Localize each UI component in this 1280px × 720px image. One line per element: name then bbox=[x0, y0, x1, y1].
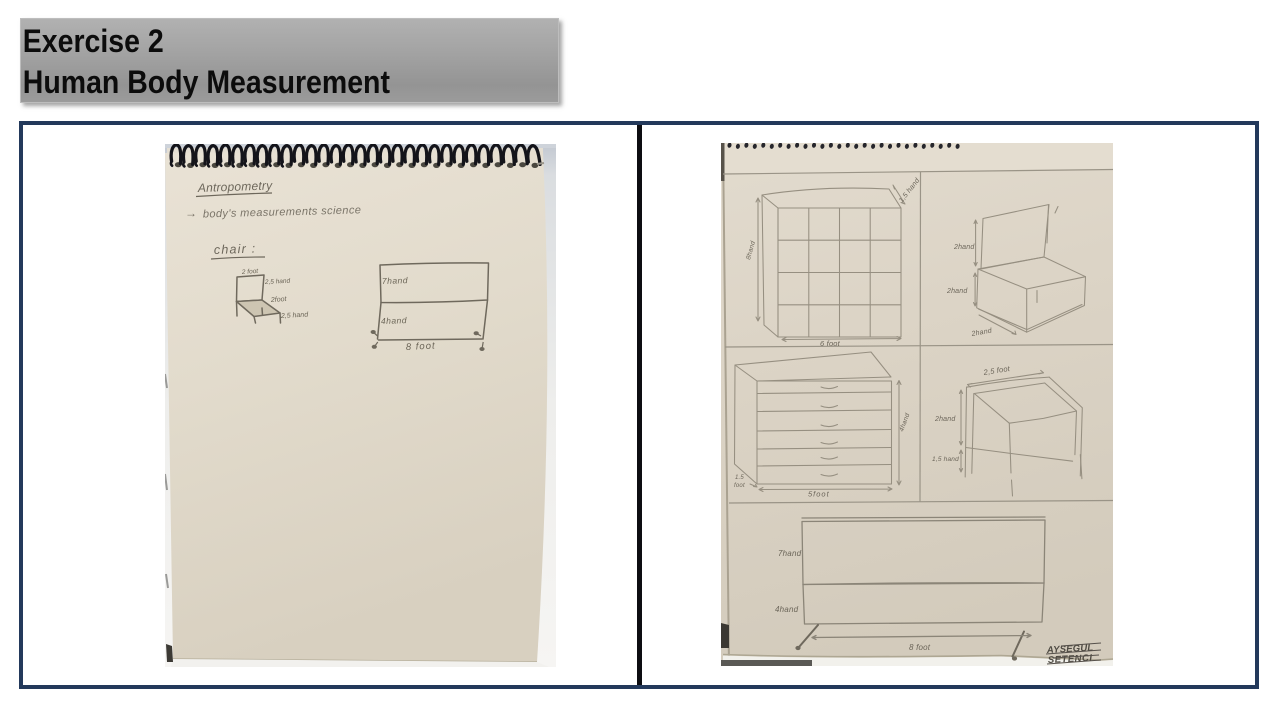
svg-text:4hand: 4hand bbox=[775, 605, 799, 614]
svg-text:8 foot: 8 foot bbox=[406, 340, 436, 353]
svg-text:7hand: 7hand bbox=[778, 549, 802, 558]
svg-text:4hand: 4hand bbox=[381, 315, 407, 326]
svg-text:2hand: 2hand bbox=[953, 244, 975, 251]
svg-text:2 foot: 2 foot bbox=[241, 268, 260, 276]
svg-text:2foot: 2foot bbox=[270, 296, 288, 304]
svg-text:→: → bbox=[185, 206, 197, 220]
svg-text:1,5 hand: 1,5 hand bbox=[932, 456, 959, 463]
svg-text:8 foot: 8 foot bbox=[909, 643, 931, 652]
svg-text:2hand: 2hand bbox=[946, 288, 968, 295]
svg-text:5foot: 5foot bbox=[808, 490, 830, 499]
svg-text:chair :: chair : bbox=[214, 242, 257, 257]
svg-text:foot: foot bbox=[734, 483, 745, 489]
svg-text:2hand: 2hand bbox=[934, 416, 956, 423]
svg-text:6 foot: 6 foot bbox=[820, 339, 841, 348]
svg-text:1.5: 1.5 bbox=[735, 475, 744, 481]
svg-text:2,5 hand: 2,5 hand bbox=[264, 278, 291, 286]
svg-text:SETENCI: SETENCI bbox=[1048, 653, 1093, 666]
svg-text:7hand: 7hand bbox=[382, 275, 408, 286]
svg-text:Antropometry: Antropometry bbox=[197, 178, 274, 195]
